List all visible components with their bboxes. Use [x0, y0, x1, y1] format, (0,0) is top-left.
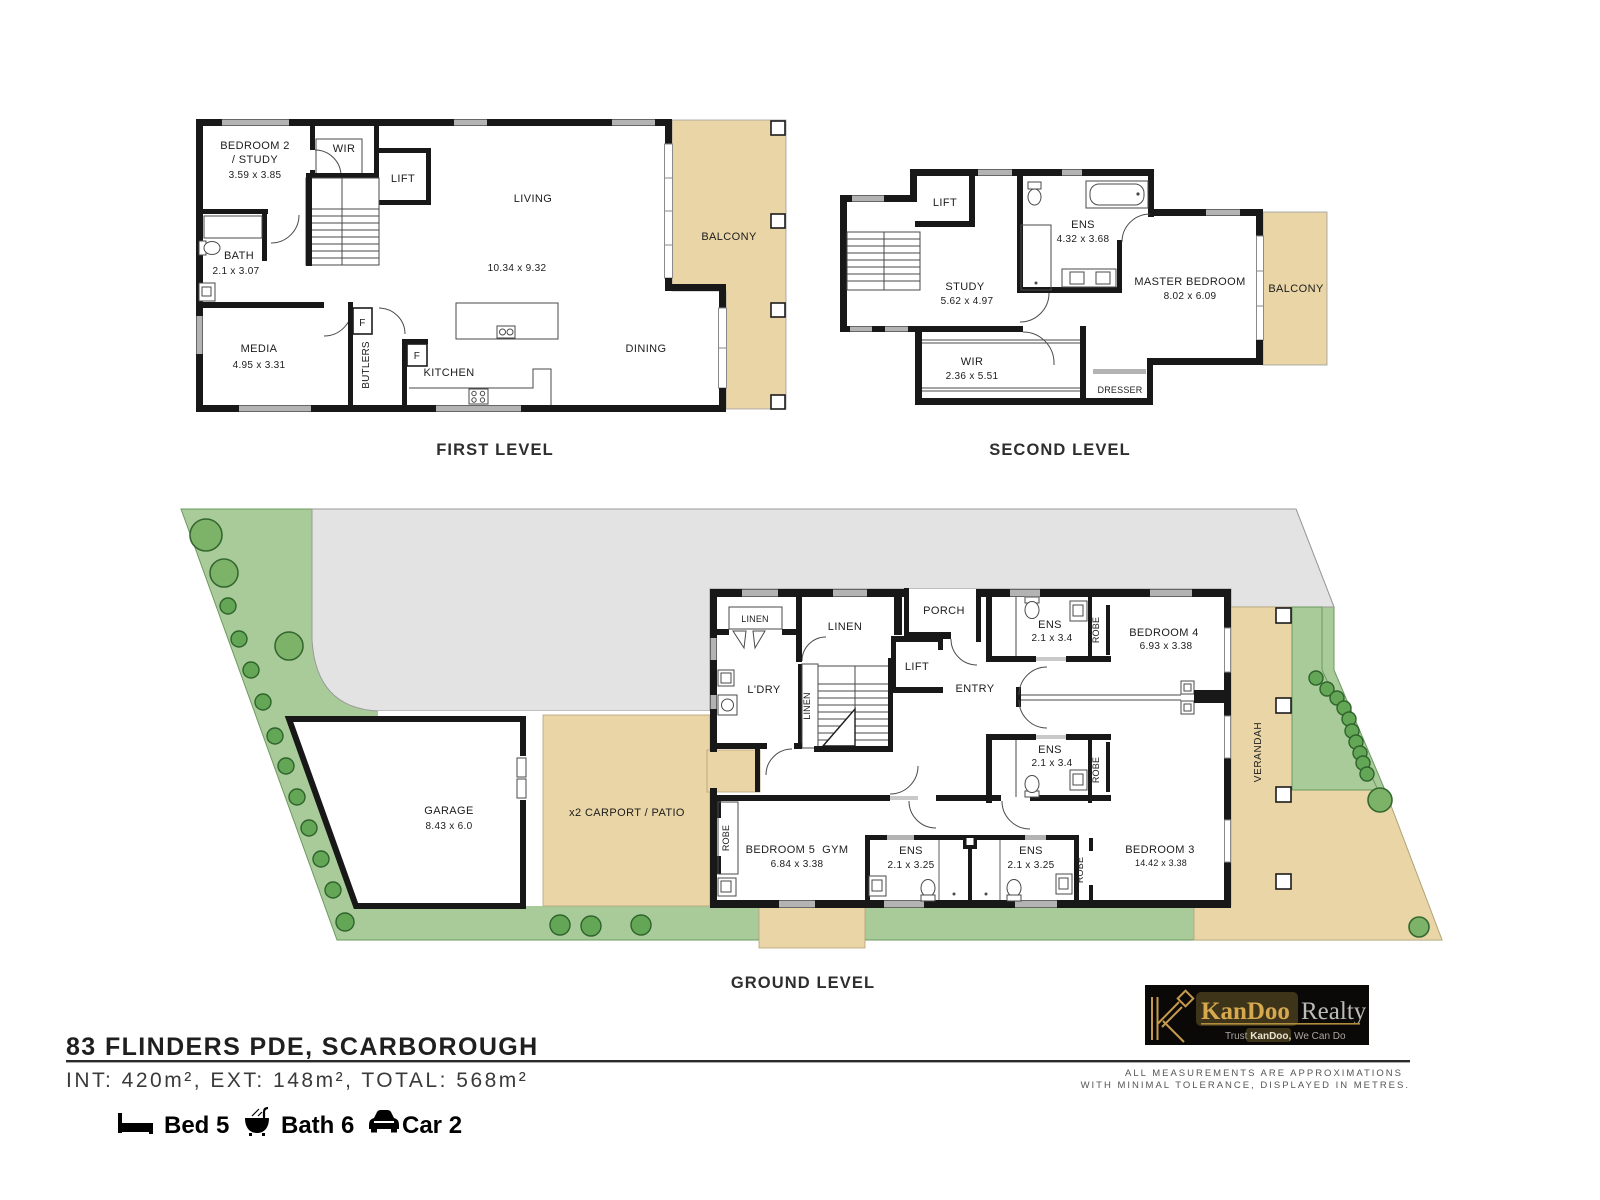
- svg-text:KITCHEN: KITCHEN: [423, 367, 474, 379]
- svg-text:BATH: BATH: [224, 250, 254, 262]
- svg-text:LIFT: LIFT: [391, 173, 415, 185]
- svg-text:x2 CARPORT / PATIO: x2 CARPORT / PATIO: [569, 807, 685, 819]
- svg-text:Car 2: Car 2: [402, 1112, 462, 1139]
- svg-text:VERANDAH: VERANDAH: [1253, 722, 1264, 782]
- svg-text:10.34 x 9.32: 10.34 x 9.32: [488, 263, 547, 274]
- svg-text:L'DRY: L'DRY: [747, 684, 781, 696]
- svg-text:GARAGE: GARAGE: [424, 805, 473, 817]
- svg-text:LINEN: LINEN: [828, 621, 862, 633]
- svg-text:Trust KanDoo, We Can Do: Trust KanDoo, We Can Do: [1225, 1031, 1346, 1042]
- svg-text:2.1 x 3.4: 2.1 x 3.4: [1031, 633, 1072, 644]
- svg-text:/ STUDY: / STUDY: [232, 154, 278, 166]
- svg-text:14.42 x 3.38: 14.42 x 3.38: [1135, 858, 1187, 868]
- svg-text:SECOND LEVEL: SECOND LEVEL: [989, 441, 1131, 459]
- svg-text:GROUND LEVEL: GROUND LEVEL: [731, 974, 875, 992]
- svg-text:Bath 6: Bath 6: [281, 1112, 354, 1139]
- svg-text:LIFT: LIFT: [933, 197, 957, 209]
- svg-text:ROBE: ROBE: [1091, 757, 1101, 783]
- svg-text:6.93 x 3.38: 6.93 x 3.38: [1140, 641, 1193, 652]
- svg-text:83 FLINDERS PDE, SCARBOROUGH: 83 FLINDERS PDE, SCARBOROUGH: [66, 1033, 539, 1061]
- svg-text:WIR: WIR: [961, 356, 984, 368]
- svg-text:MASTER BEDROOM: MASTER BEDROOM: [1134, 276, 1245, 288]
- svg-text:MEDIA: MEDIA: [241, 343, 278, 355]
- svg-text:ENS: ENS: [1019, 845, 1043, 857]
- svg-text:DRESSER: DRESSER: [1098, 385, 1143, 395]
- svg-text:8.43 x 6.0: 8.43 x 6.0: [426, 821, 473, 832]
- svg-text:2.1 x 3.07: 2.1 x 3.07: [213, 266, 260, 277]
- svg-text:4.32 x 3.68: 4.32 x 3.68: [1057, 234, 1110, 245]
- svg-text:ENS: ENS: [1038, 744, 1062, 756]
- svg-text:BALCONY: BALCONY: [1268, 283, 1324, 295]
- svg-text:2.1 x 3.4: 2.1 x 3.4: [1031, 758, 1072, 769]
- svg-text:ENS: ENS: [899, 845, 923, 857]
- svg-text:5.62 x 4.97: 5.62 x 4.97: [941, 296, 994, 307]
- svg-text:FIRST LEVEL: FIRST LEVEL: [436, 441, 554, 459]
- svg-text:WIR: WIR: [333, 143, 356, 155]
- svg-text:3.59 x 3.85: 3.59 x 3.85: [229, 170, 282, 181]
- svg-text:ROBE: ROBE: [1075, 857, 1085, 883]
- svg-text:LIVING: LIVING: [514, 193, 552, 205]
- svg-text:F: F: [359, 318, 365, 329]
- svg-text:Bed 5: Bed 5: [164, 1112, 229, 1139]
- svg-text:ROBE: ROBE: [721, 825, 731, 851]
- svg-text:DINING: DINING: [626, 343, 667, 355]
- svg-text:KanDoo: KanDoo: [1201, 998, 1290, 1025]
- svg-text:BEDROOM 5 GYM: BEDROOM 5 GYM: [746, 844, 849, 856]
- svg-text:8.02 x 6.09: 8.02 x 6.09: [1164, 291, 1217, 302]
- svg-text:6.84 x 3.38: 6.84 x 3.38: [771, 859, 824, 870]
- svg-text:Realty: Realty: [1301, 998, 1367, 1025]
- svg-text:ALL MEASUREMENTS ARE APPROXIMA: ALL MEASUREMENTS ARE APPROXIMATIONS: [1125, 1068, 1403, 1079]
- svg-text:BEDROOM 4: BEDROOM 4: [1129, 627, 1199, 639]
- svg-text:2.1 x 3.25: 2.1 x 3.25: [1008, 860, 1055, 871]
- svg-text:LINEN: LINEN: [802, 692, 812, 720]
- svg-text:PORCH: PORCH: [923, 605, 965, 617]
- svg-text:BEDROOM 3: BEDROOM 3: [1125, 844, 1195, 856]
- svg-text:2.1 x 3.25: 2.1 x 3.25: [888, 860, 935, 871]
- svg-text:BUTLERS: BUTLERS: [361, 341, 372, 389]
- svg-text:STUDY: STUDY: [945, 281, 985, 293]
- svg-text:BALCONY: BALCONY: [701, 231, 757, 243]
- svg-text:LIFT: LIFT: [905, 661, 929, 673]
- svg-text:WITH MINIMAL TOLERANCE, DISPLA: WITH MINIMAL TOLERANCE, DISPLAYED IN MET…: [1081, 1080, 1410, 1091]
- svg-text:BEDROOM 2: BEDROOM 2: [220, 140, 290, 152]
- svg-text:ENS: ENS: [1071, 219, 1095, 231]
- svg-text:ENTRY: ENTRY: [955, 683, 994, 695]
- svg-text:LINEN: LINEN: [741, 614, 769, 624]
- svg-text:2.36 x 5.51: 2.36 x 5.51: [946, 371, 999, 382]
- svg-text:INT: 420m², EXT: 148m², TOTAL:: INT: 420m², EXT: 148m², TOTAL: 568m²: [66, 1069, 528, 1092]
- svg-text:4.95 x 3.31: 4.95 x 3.31: [233, 360, 286, 371]
- svg-text:ROBE: ROBE: [1091, 617, 1101, 643]
- svg-text:F: F: [414, 351, 420, 362]
- svg-text:ENS: ENS: [1038, 619, 1062, 631]
